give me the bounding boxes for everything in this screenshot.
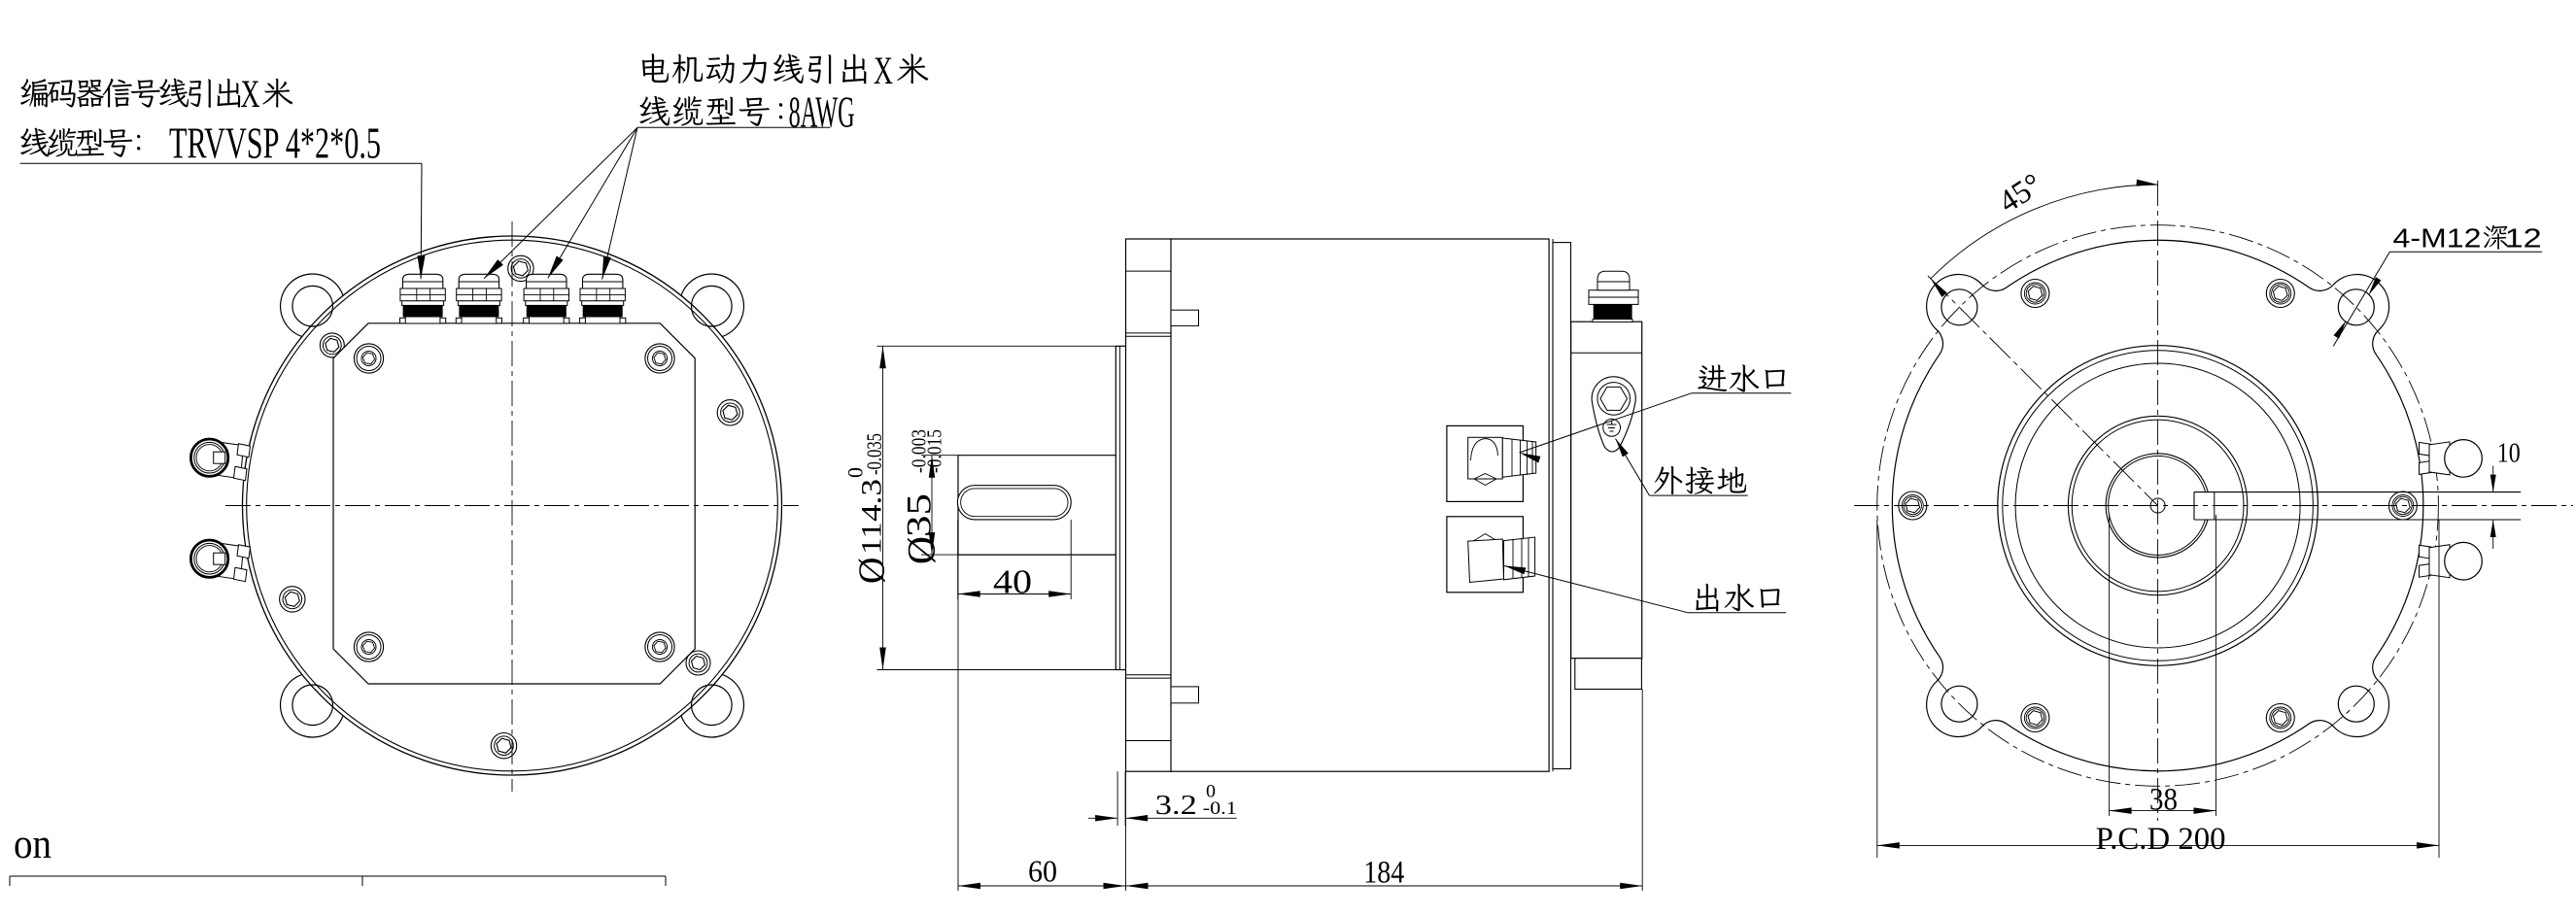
svg-text:Ø: Ø: [900, 536, 944, 564]
svg-text:P.C.D 200: P.C.D 200: [2096, 822, 2226, 857]
svg-text:45°: 45°: [1993, 167, 2048, 220]
svg-text:184: 184: [1363, 855, 1404, 890]
svg-text:-0.015: -0.015: [923, 429, 946, 473]
svg-text:8AWG: 8AWG: [789, 88, 855, 137]
svg-text:60: 60: [1028, 854, 1057, 889]
svg-text:114.3: 114.3: [856, 479, 888, 555]
svg-text:Ø: Ø: [852, 558, 893, 584]
svg-text:X: X: [874, 49, 893, 92]
svg-text:-0.1: -0.1: [1203, 798, 1237, 819]
svg-text:-0.035: -0.035: [862, 433, 886, 475]
svg-text:on: on: [14, 822, 52, 867]
svg-text:4-M12: 4-M12: [2393, 223, 2482, 254]
svg-text:35: 35: [900, 493, 939, 537]
svg-text:X: X: [241, 72, 260, 116]
svg-text:10: 10: [2497, 437, 2521, 468]
svg-text:38: 38: [2149, 783, 2178, 818]
svg-text:3.2: 3.2: [1155, 791, 1197, 821]
svg-text:TRVVSP 4*2*0.5: TRVVSP 4*2*0.5: [169, 119, 381, 168]
svg-text:40: 40: [993, 563, 1032, 601]
svg-text:12: 12: [2505, 223, 2542, 254]
